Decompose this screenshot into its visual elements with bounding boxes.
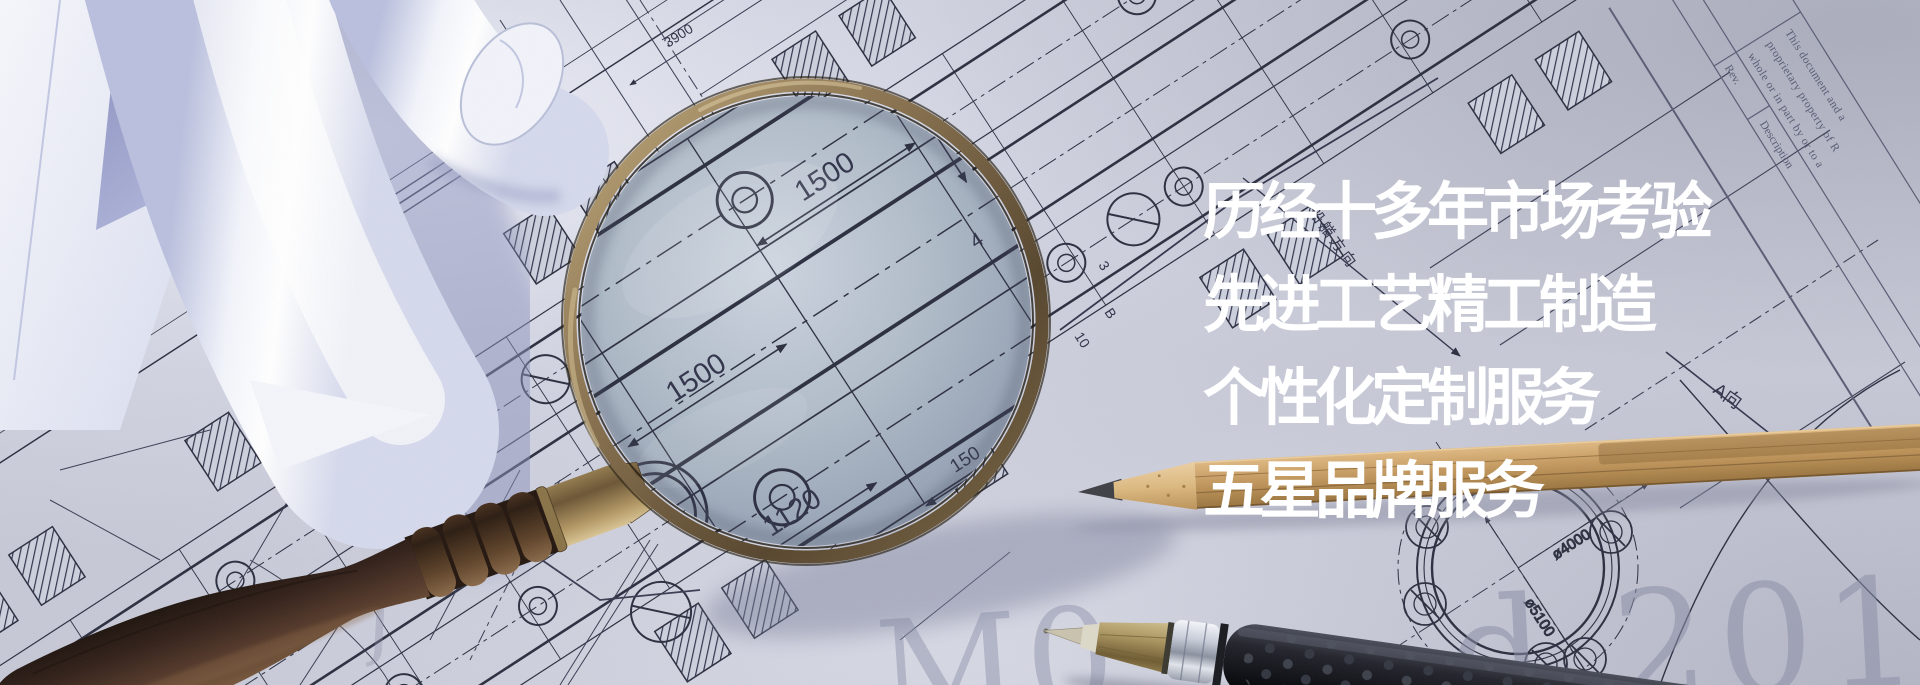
headline-line-1: 历经十多年市场考验 bbox=[1203, 166, 1707, 259]
headline-line-2: 先进工艺精工制造 bbox=[1203, 259, 1707, 352]
headline-line-4: 五星品牌服务 bbox=[1203, 445, 1707, 538]
hero-banner: 1500 1500 1500 1120 150 4 bbox=[0, 0, 1920, 685]
headline-line-3: 个性化定制服务 bbox=[1203, 352, 1707, 445]
hero-headlines: 历经十多年市场考验 先进工艺精工制造 个性化定制服务 五星品牌服务 bbox=[1203, 166, 1707, 538]
